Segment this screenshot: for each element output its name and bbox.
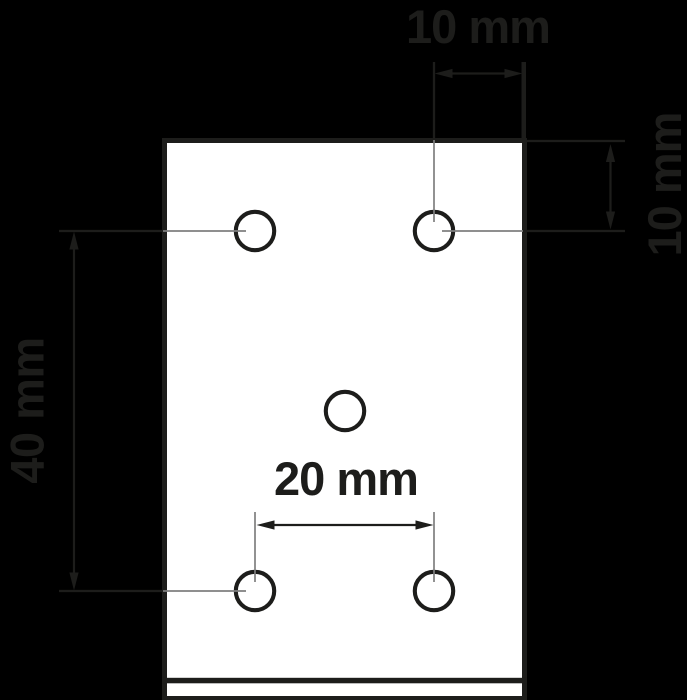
svg-text:10 mm: 10 mm (406, 0, 550, 53)
svg-text:20 mm: 20 mm (274, 452, 418, 505)
svg-text:10 mm: 10 mm (638, 113, 687, 257)
svg-text:40 mm: 40 mm (1, 337, 54, 483)
